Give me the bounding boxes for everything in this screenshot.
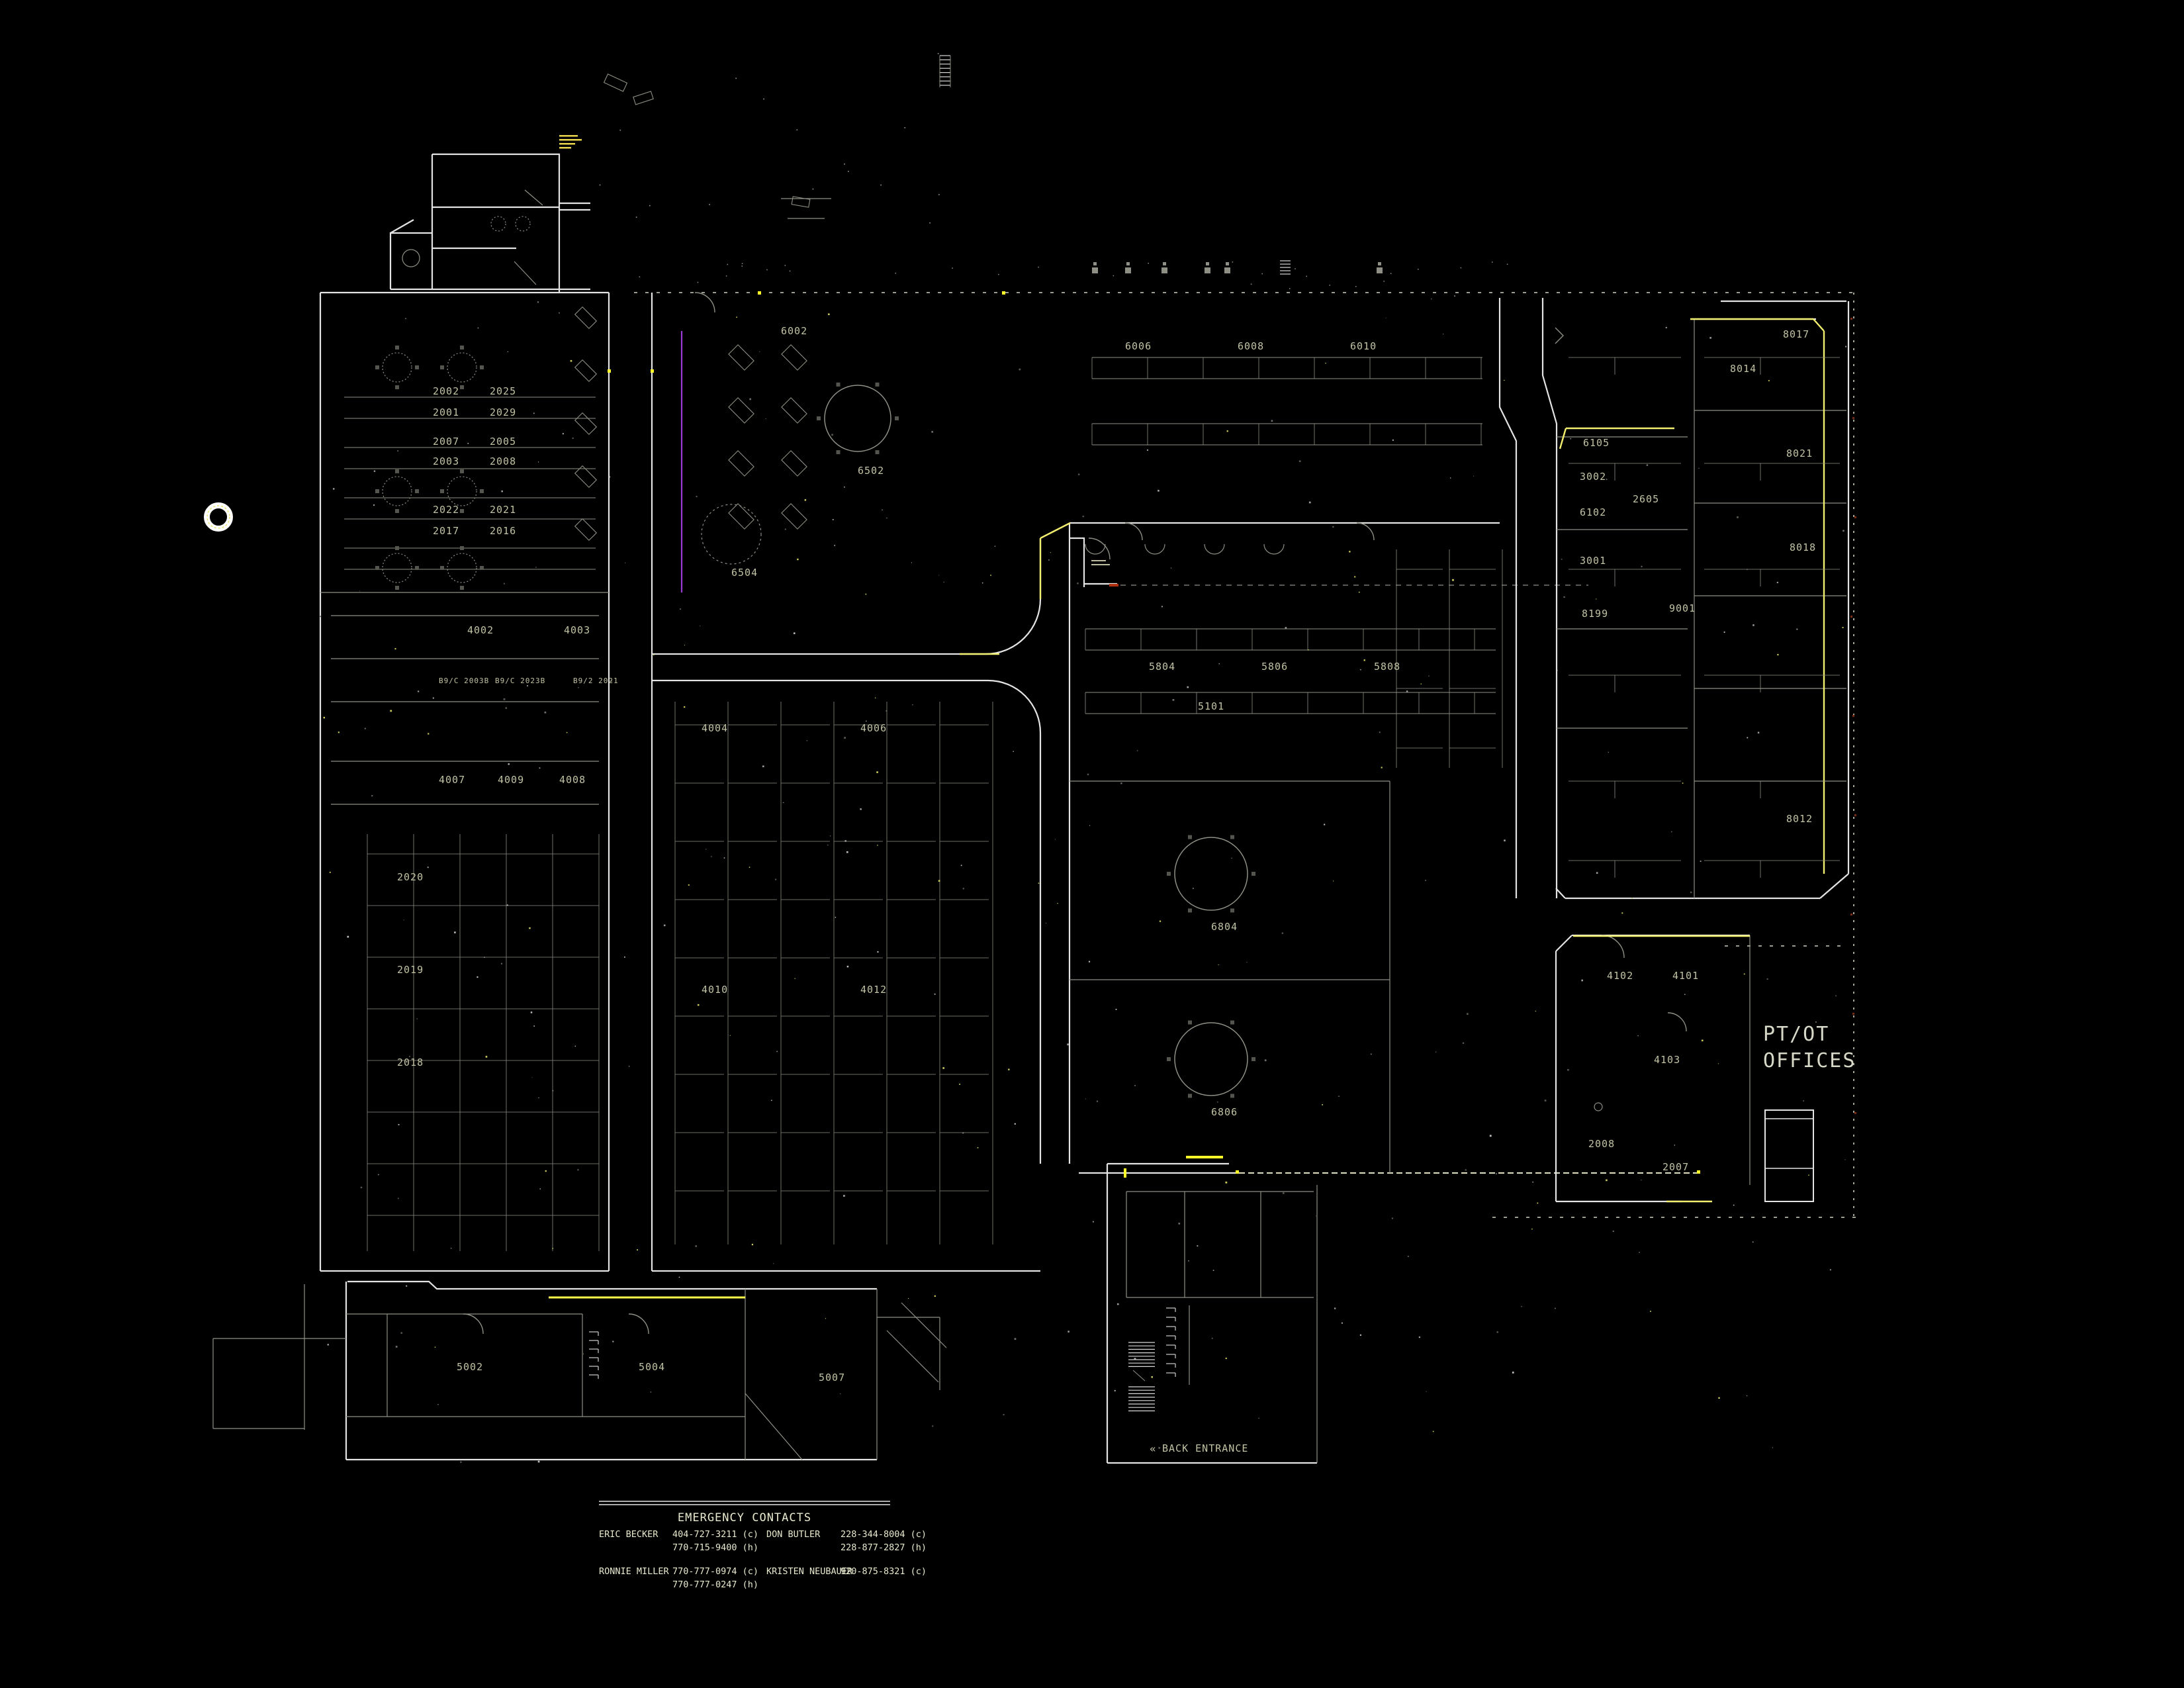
room-label: 4010 bbox=[702, 984, 728, 996]
column-marker-donut bbox=[207, 506, 230, 529]
generated-cubicles bbox=[344, 56, 1856, 1411]
room-label: 2005 bbox=[490, 436, 516, 447]
room-label: 2008 bbox=[1588, 1138, 1615, 1150]
room-label: 6010 bbox=[1350, 340, 1377, 352]
room-label: 2022 bbox=[433, 504, 459, 516]
wing-label: PT/OT OFFICES bbox=[1763, 1023, 1856, 1072]
contact-phone: 920-875-8321 (c) bbox=[841, 1566, 927, 1577]
room-label: 4102 bbox=[1607, 970, 1633, 982]
room-label: 8017 bbox=[1783, 328, 1809, 340]
room-label: 3001 bbox=[1580, 555, 1606, 567]
room-label: 2025 bbox=[490, 385, 516, 397]
room-label: 2018 bbox=[397, 1056, 424, 1068]
room-label: 6006 bbox=[1125, 340, 1152, 352]
room-label: 6002 bbox=[781, 325, 807, 337]
room-label: 2605 bbox=[1633, 493, 1659, 505]
room-label: 6804 bbox=[1211, 921, 1238, 933]
room-label: 4101 bbox=[1672, 970, 1699, 982]
legend-rule bbox=[599, 1501, 890, 1505]
room-label: 9001 bbox=[1669, 602, 1696, 614]
room-label: 2017 bbox=[433, 525, 459, 537]
contact-phone: 770-715-9400 (h) bbox=[672, 1542, 758, 1553]
room-label: 2021 bbox=[490, 504, 516, 516]
room-label: 2029 bbox=[490, 406, 516, 418]
room-label: 4008 bbox=[559, 774, 586, 786]
room-label: 4006 bbox=[860, 722, 887, 734]
yellow-highlight-lines bbox=[549, 319, 1824, 1297]
room-label: 5004 bbox=[639, 1361, 665, 1373]
room-label: 4002 bbox=[467, 624, 494, 636]
room-label: 2001 bbox=[433, 406, 459, 418]
room-label: 5002 bbox=[457, 1361, 483, 1373]
room-label: 6008 bbox=[1238, 340, 1264, 352]
room-label: 5101 bbox=[1198, 700, 1224, 712]
site-boundary-lines bbox=[634, 293, 1860, 1217]
room-label: 2016 bbox=[490, 525, 516, 537]
room-label: 6806 bbox=[1211, 1106, 1238, 1118]
legend-block: EMERGENCY CONTACTS ERIC BECKER 404-727-3… bbox=[599, 1501, 927, 1590]
room-label: 4012 bbox=[860, 984, 887, 996]
room-label: 8199 bbox=[1582, 608, 1608, 620]
room-label: B9/2 2021 bbox=[573, 677, 619, 685]
room-label: 6504 bbox=[731, 567, 758, 579]
room-label: 4004 bbox=[702, 722, 728, 734]
room-label: 8012 bbox=[1786, 813, 1813, 825]
left-chevron-icon: « bbox=[1150, 1442, 1156, 1455]
room-label: 2007 bbox=[433, 436, 459, 447]
wing-label-line1: PT/OT bbox=[1763, 1023, 1829, 1046]
room-label: 6102 bbox=[1580, 506, 1606, 518]
room-label: 2003 bbox=[433, 455, 459, 467]
floor-plan-canvas: 2002202520012029200720052003200820222021… bbox=[0, 0, 2184, 1688]
contact-phone: 770-777-0974 (c) bbox=[672, 1566, 758, 1577]
contact-phone: 770-777-0247 (h) bbox=[672, 1579, 758, 1590]
noise-specks bbox=[320, 53, 1846, 1463]
contact-phone: 404-727-3211 (c) bbox=[672, 1529, 758, 1540]
cad-floorplan-view: 2002202520012029200720052003200820222021… bbox=[0, 0, 2184, 1688]
room-label: 4103 bbox=[1654, 1054, 1680, 1066]
room-label: B9/C 2023B bbox=[495, 677, 545, 685]
legend-title: EMERGENCY CONTACTS bbox=[678, 1511, 811, 1524]
contact-name: ERIC BECKER bbox=[599, 1529, 659, 1540]
room-label: 6105 bbox=[1583, 437, 1610, 449]
room-label: 2019 bbox=[397, 964, 424, 976]
room-label: 4009 bbox=[498, 774, 524, 786]
room-label: 5806 bbox=[1261, 661, 1288, 673]
room-label: 4003 bbox=[564, 624, 590, 636]
micro-note-block bbox=[559, 135, 1110, 565]
wall-lines bbox=[320, 154, 1848, 1463]
room-label: 8021 bbox=[1786, 447, 1813, 459]
back-entrance-label: BACK ENTRANCE bbox=[1162, 1442, 1248, 1454]
room-label: 2007 bbox=[1662, 1161, 1689, 1173]
room-label: 5808 bbox=[1374, 661, 1400, 673]
room-label: 5804 bbox=[1149, 661, 1175, 673]
room-label: 3002 bbox=[1580, 471, 1606, 483]
room-label: 5007 bbox=[819, 1372, 845, 1383]
room-label: 8014 bbox=[1730, 363, 1756, 375]
room-label: 2008 bbox=[490, 455, 516, 467]
room-label: 6502 bbox=[858, 465, 884, 477]
contact-phone: 228-344-8004 (c) bbox=[841, 1529, 927, 1540]
room-label: 4007 bbox=[439, 774, 465, 786]
wing-label-line2: OFFICES bbox=[1763, 1049, 1856, 1072]
room-label: 2020 bbox=[397, 871, 424, 883]
room-label: 2002 bbox=[433, 385, 459, 397]
contact-name: RONNIE MILLER bbox=[599, 1566, 670, 1577]
contact-phone: 228-877-2827 (h) bbox=[841, 1542, 927, 1553]
contact-name: DON BUTLER bbox=[766, 1529, 821, 1540]
room-label: B9/C 2003B bbox=[439, 677, 489, 685]
room-label: 8018 bbox=[1790, 541, 1816, 553]
back-entrance-annotation: « BACK ENTRANCE bbox=[1150, 1442, 1248, 1455]
